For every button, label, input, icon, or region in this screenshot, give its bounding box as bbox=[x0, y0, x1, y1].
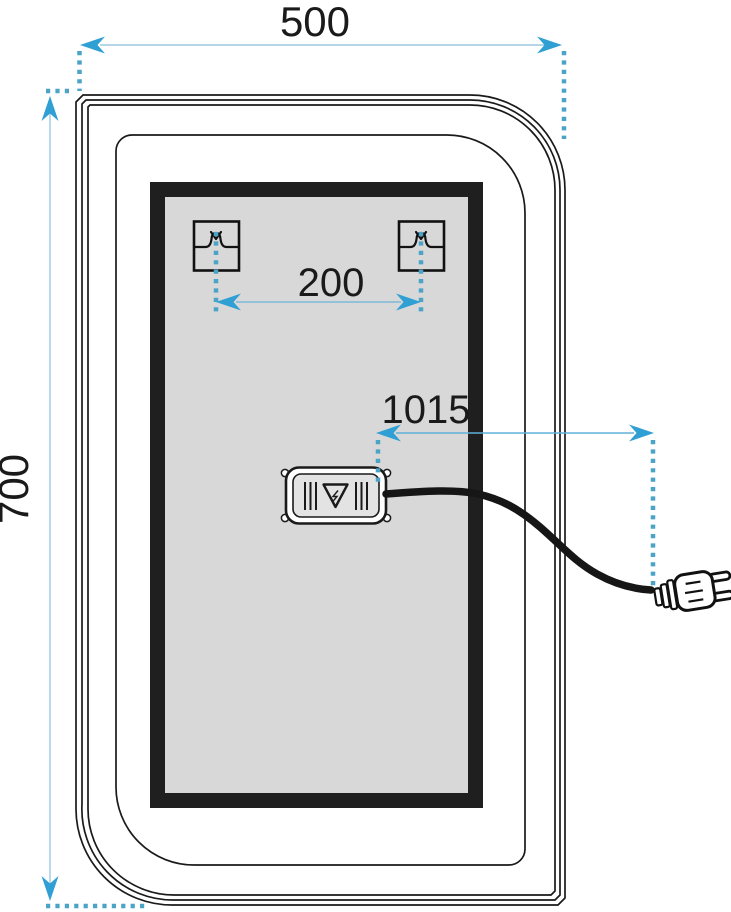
width-dimension: 500 bbox=[80, 0, 565, 139]
power-plug bbox=[653, 567, 731, 615]
width-dimension-label: 500 bbox=[280, 0, 350, 45]
control-box bbox=[281, 468, 390, 524]
height-dimension: 700 bbox=[0, 91, 146, 906]
cable-length-label: 1015 bbox=[382, 388, 471, 432]
height-dimension-label: 700 bbox=[0, 454, 37, 524]
diagram-canvas: 500 700 200 1015 bbox=[0, 0, 731, 912]
bracket-spacing-label: 200 bbox=[298, 261, 365, 305]
mirror-dimension-diagram: 500 700 200 1015 bbox=[0, 0, 731, 912]
